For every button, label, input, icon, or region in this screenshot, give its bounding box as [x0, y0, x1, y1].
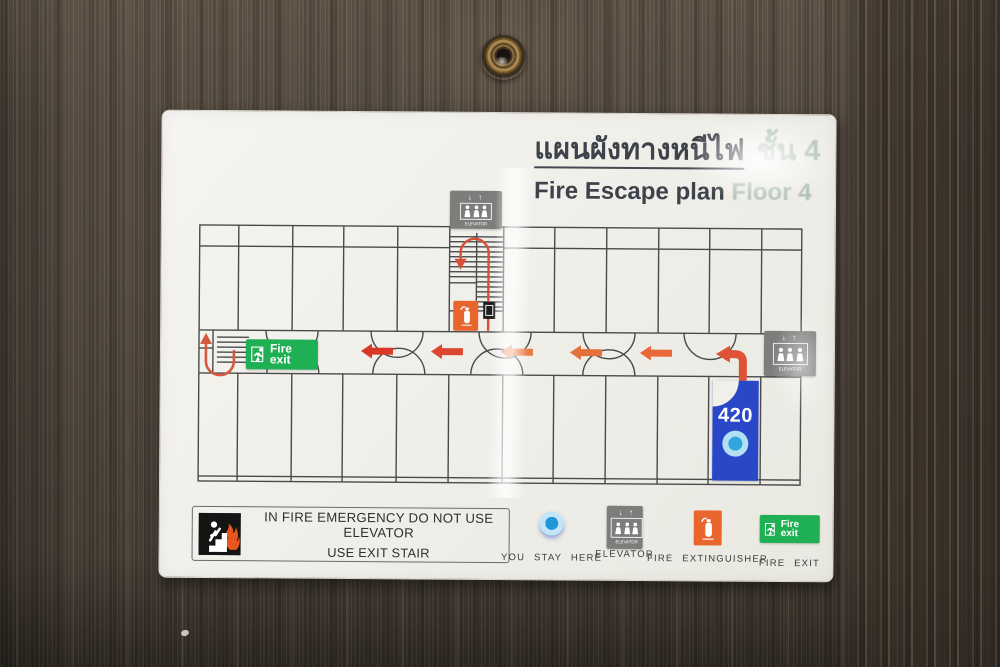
fire-exit-sign-text: Fire exit — [781, 519, 799, 538]
elevator-sign-label: ELEVATOR — [465, 222, 487, 226]
legend-label: FIRE EXTINGUISHER — [647, 553, 768, 565]
elevator-people-icon — [611, 518, 643, 538]
room-420-highlight: 420 — [712, 381, 759, 481]
you-stay-here-dot-icon — [540, 511, 564, 535]
fire-extinguisher-icon — [694, 510, 722, 545]
extinguisher-glyph — [699, 514, 717, 542]
exit-plaque-icon — [483, 302, 495, 319]
elevator-arrows-icon: ↓ ↑ — [782, 334, 798, 342]
legend-you-stay-here: YOU STAY HERE — [509, 509, 593, 564]
elevator-sign-frame: ↓ ↑ ELEVATOR — [609, 508, 645, 547]
legend-label: YOU STAY HERE — [501, 552, 602, 564]
legend-label: ELEVATOR — [595, 549, 654, 560]
elevator-sign-frame: ↓ ↑ ELEVATOR — [766, 333, 814, 374]
elevator-arrows-icon: ↓ ↑ — [619, 509, 635, 517]
warning-line-2: USE EXIT STAIR — [249, 544, 509, 561]
legend-fire-extinguisher: FIRE EXTINGUISHER — [667, 510, 747, 565]
elevator-people-icon — [460, 203, 492, 220]
photo-of-door-with-fire-escape-plan: แผนผังทางหนีไฟชั้น 4 Fire Escape plan Fl… — [0, 0, 1000, 667]
fire-exit-sign-icon: Fire exit — [760, 515, 820, 543]
warning-text: IN FIRE EMERGENCY DO NOT USE ELEVATOR US… — [249, 509, 509, 561]
elevator-sign-label: ELEVATOR — [779, 367, 801, 371]
elevator-sign-label: ELEVATOR — [615, 540, 637, 544]
elevator-arrows-icon: ↓ ↑ — [468, 194, 484, 202]
legend-fire-exit: Fire exit FIRE EXIT — [755, 515, 823, 569]
extinguisher-glyph — [458, 304, 474, 328]
elevator-sign-frame: ↓ ↑ ELEVATOR — [452, 193, 500, 227]
room-number-label: 420 — [712, 405, 758, 428]
you-stay-here-marker — [722, 431, 748, 457]
warning-line-1: IN FIRE EMERGENCY DO NOT USE ELEVATOR — [249, 509, 509, 541]
elevator-people-icon — [772, 343, 807, 365]
fire-stairs-icon — [199, 512, 241, 554]
fire-exit-word2: exit — [781, 529, 799, 539]
fire-exit-word2: exit — [270, 354, 292, 366]
running-man-icon — [765, 522, 778, 535]
running-man-icon — [251, 346, 267, 362]
legend-label: FIRE EXIT — [759, 558, 820, 569]
fire-warning-box: IN FIRE EMERGENCY DO NOT USE ELEVATOR US… — [191, 506, 509, 563]
door-peephole — [481, 35, 526, 80]
elevator-sign-icon: ↓ ↑ ELEVATOR — [607, 506, 643, 549]
legend-elevator: ↓ ↑ ELEVATOR ELEVATOR — [593, 506, 657, 560]
fire-exit-sign-text: Fire exit — [270, 343, 292, 366]
elevator-sign: ↓ ↑ ELEVATOR — [764, 331, 816, 376]
fire-extinguisher-icon — [453, 301, 478, 331]
elevator-sign: ↓ ↑ ELEVATOR — [450, 191, 502, 229]
fire-exit-sign: Fire exit — [246, 339, 318, 370]
wood-grain-texture — [830, 0, 1000, 667]
fire-escape-plan-sign: แผนผังทางหนีไฟชั้น 4 Fire Escape plan Fl… — [158, 110, 836, 583]
